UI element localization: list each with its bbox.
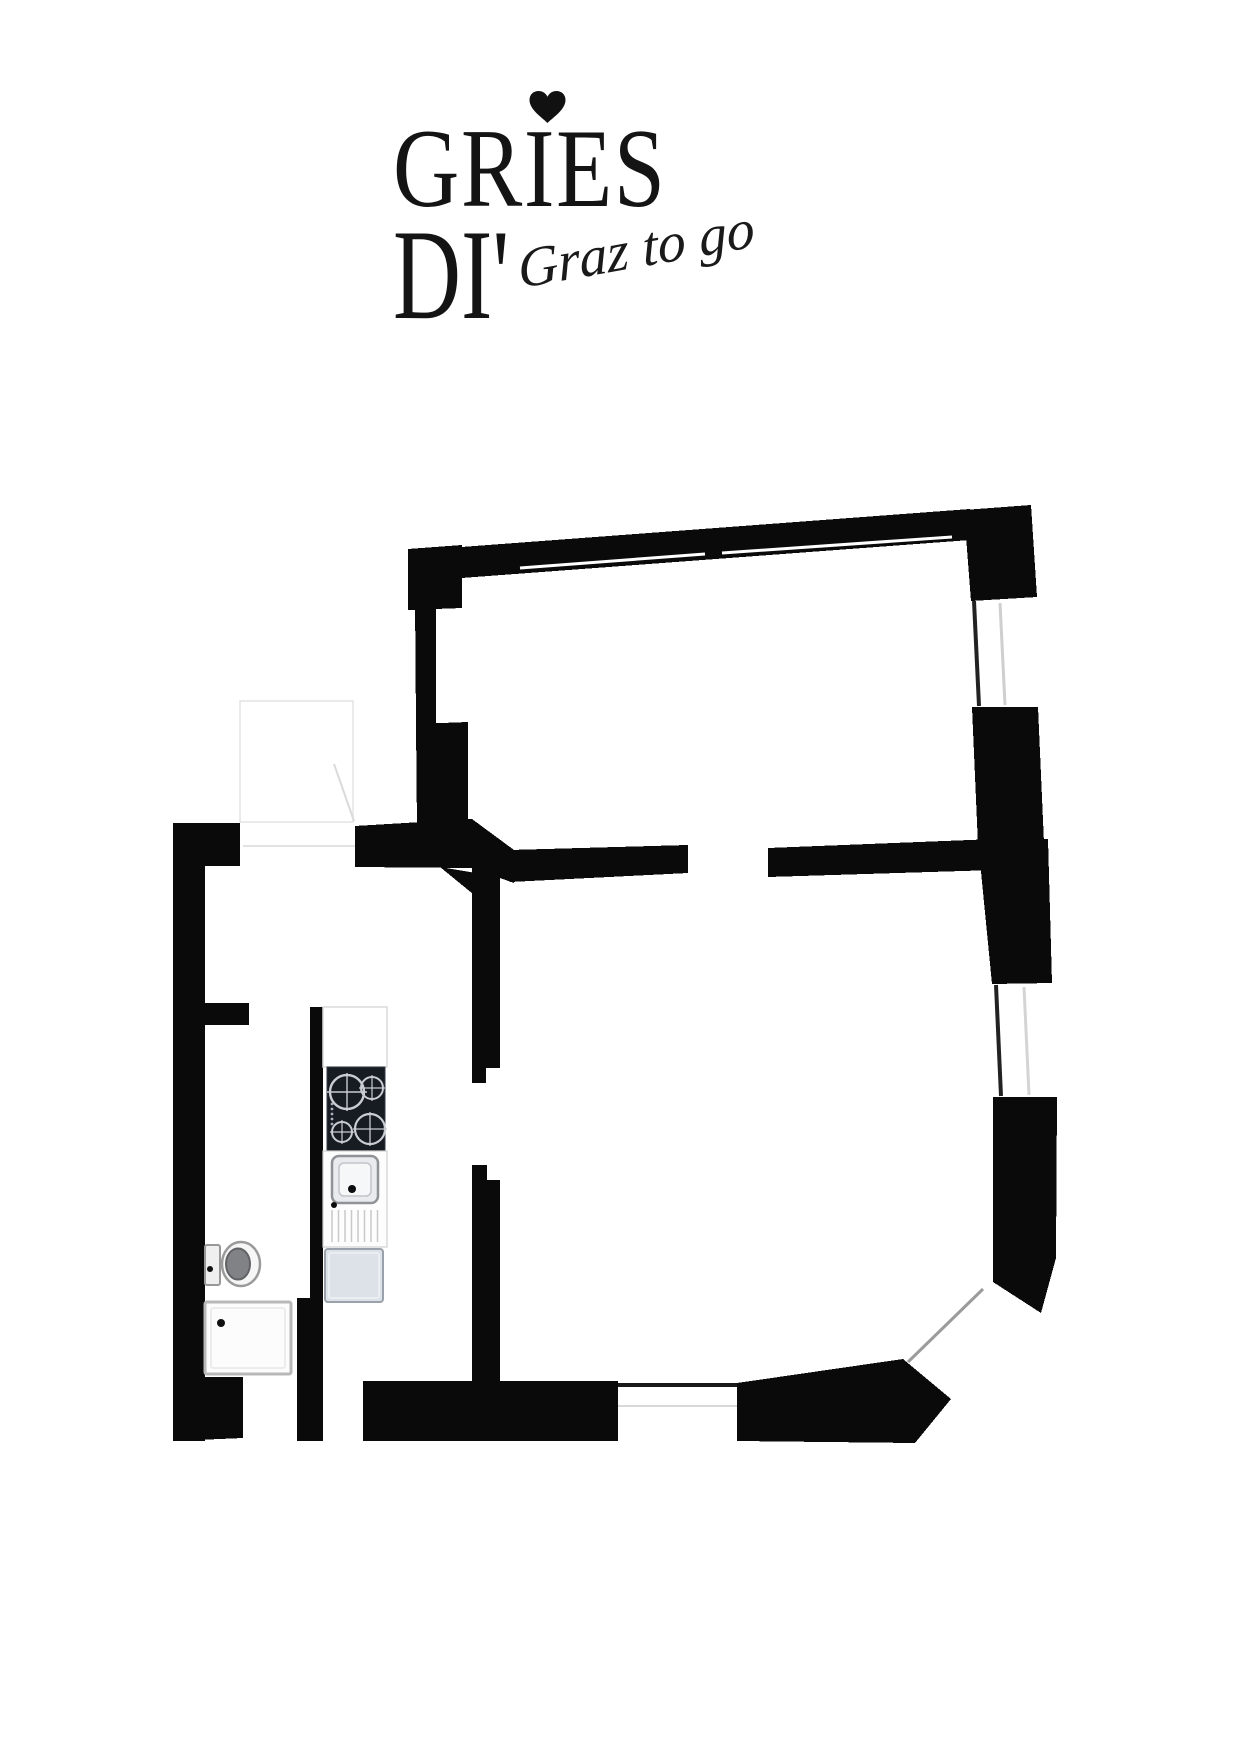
wall-room-divider-left (510, 845, 688, 882)
kitchen-counter (323, 1007, 387, 1302)
wall-central-lower (472, 1165, 500, 1384)
toilet-icon (205, 1242, 260, 1286)
stove-knob (331, 1123, 334, 1126)
counter-top-icon (323, 1007, 387, 1067)
window-right-top-frame-icon (1000, 603, 1005, 705)
wall-left (173, 823, 205, 1441)
wall-left-upper-narrow (415, 598, 436, 724)
wall-right-segment3-chamfer (993, 1097, 1057, 1313)
stove-knob (331, 1108, 334, 1111)
wall-bottom-right-diagonal (737, 1359, 951, 1443)
dishwasher-icon (325, 1249, 383, 1302)
walls (173, 505, 1057, 1443)
dishwasher-body (325, 1249, 383, 1302)
poster-page: GRIES DI' Graz to go (0, 0, 1241, 1754)
floor-plan (0, 0, 1241, 1754)
shower-tray (205, 1302, 291, 1374)
wall-right-segment2 (978, 839, 1052, 984)
bathroom-fixtures (205, 1242, 291, 1374)
window-diagonal-icon (908, 1289, 983, 1362)
wall-hall-top (355, 819, 472, 868)
toilet-bowl-inner (226, 1249, 250, 1280)
wall-bath-kitchen-divider-upper (310, 1007, 323, 1298)
wall-left-upper-wide (416, 722, 468, 828)
kitchen-sink-icon (323, 1151, 387, 1247)
sink-faucet (331, 1202, 337, 1208)
door-swing-icon (240, 701, 353, 822)
window-right-mid-icon (996, 985, 1001, 1096)
shower-tray-icon (205, 1302, 291, 1374)
sink-drain (348, 1185, 356, 1193)
wall-top-right-corner (964, 505, 1037, 601)
toilet-valve (207, 1266, 213, 1272)
toilet-tank (205, 1245, 220, 1285)
wall-room-divider-right (768, 839, 995, 877)
stove-knob (331, 1103, 334, 1106)
stove-icon (327, 1067, 387, 1151)
windows (618, 601, 1029, 1406)
stove-knob (331, 1118, 334, 1121)
shower-drain (217, 1319, 225, 1327)
wall-central-upper (472, 858, 500, 1083)
wall-bath-kitchen-divider-lower (297, 1298, 323, 1441)
wall-bathroom-stub (201, 1003, 249, 1025)
wall-right-segment1 (972, 707, 1044, 845)
entry-door (240, 701, 355, 846)
door-leaf-icon (334, 764, 354, 821)
window-right-mid-frame-icon (1024, 987, 1029, 1095)
window-right-top-icon (974, 601, 979, 706)
wall-top (408, 509, 970, 582)
stove-knob (331, 1113, 334, 1116)
wall-bottom-left-band (363, 1381, 618, 1441)
wall-left-bottom-block (173, 1377, 243, 1441)
